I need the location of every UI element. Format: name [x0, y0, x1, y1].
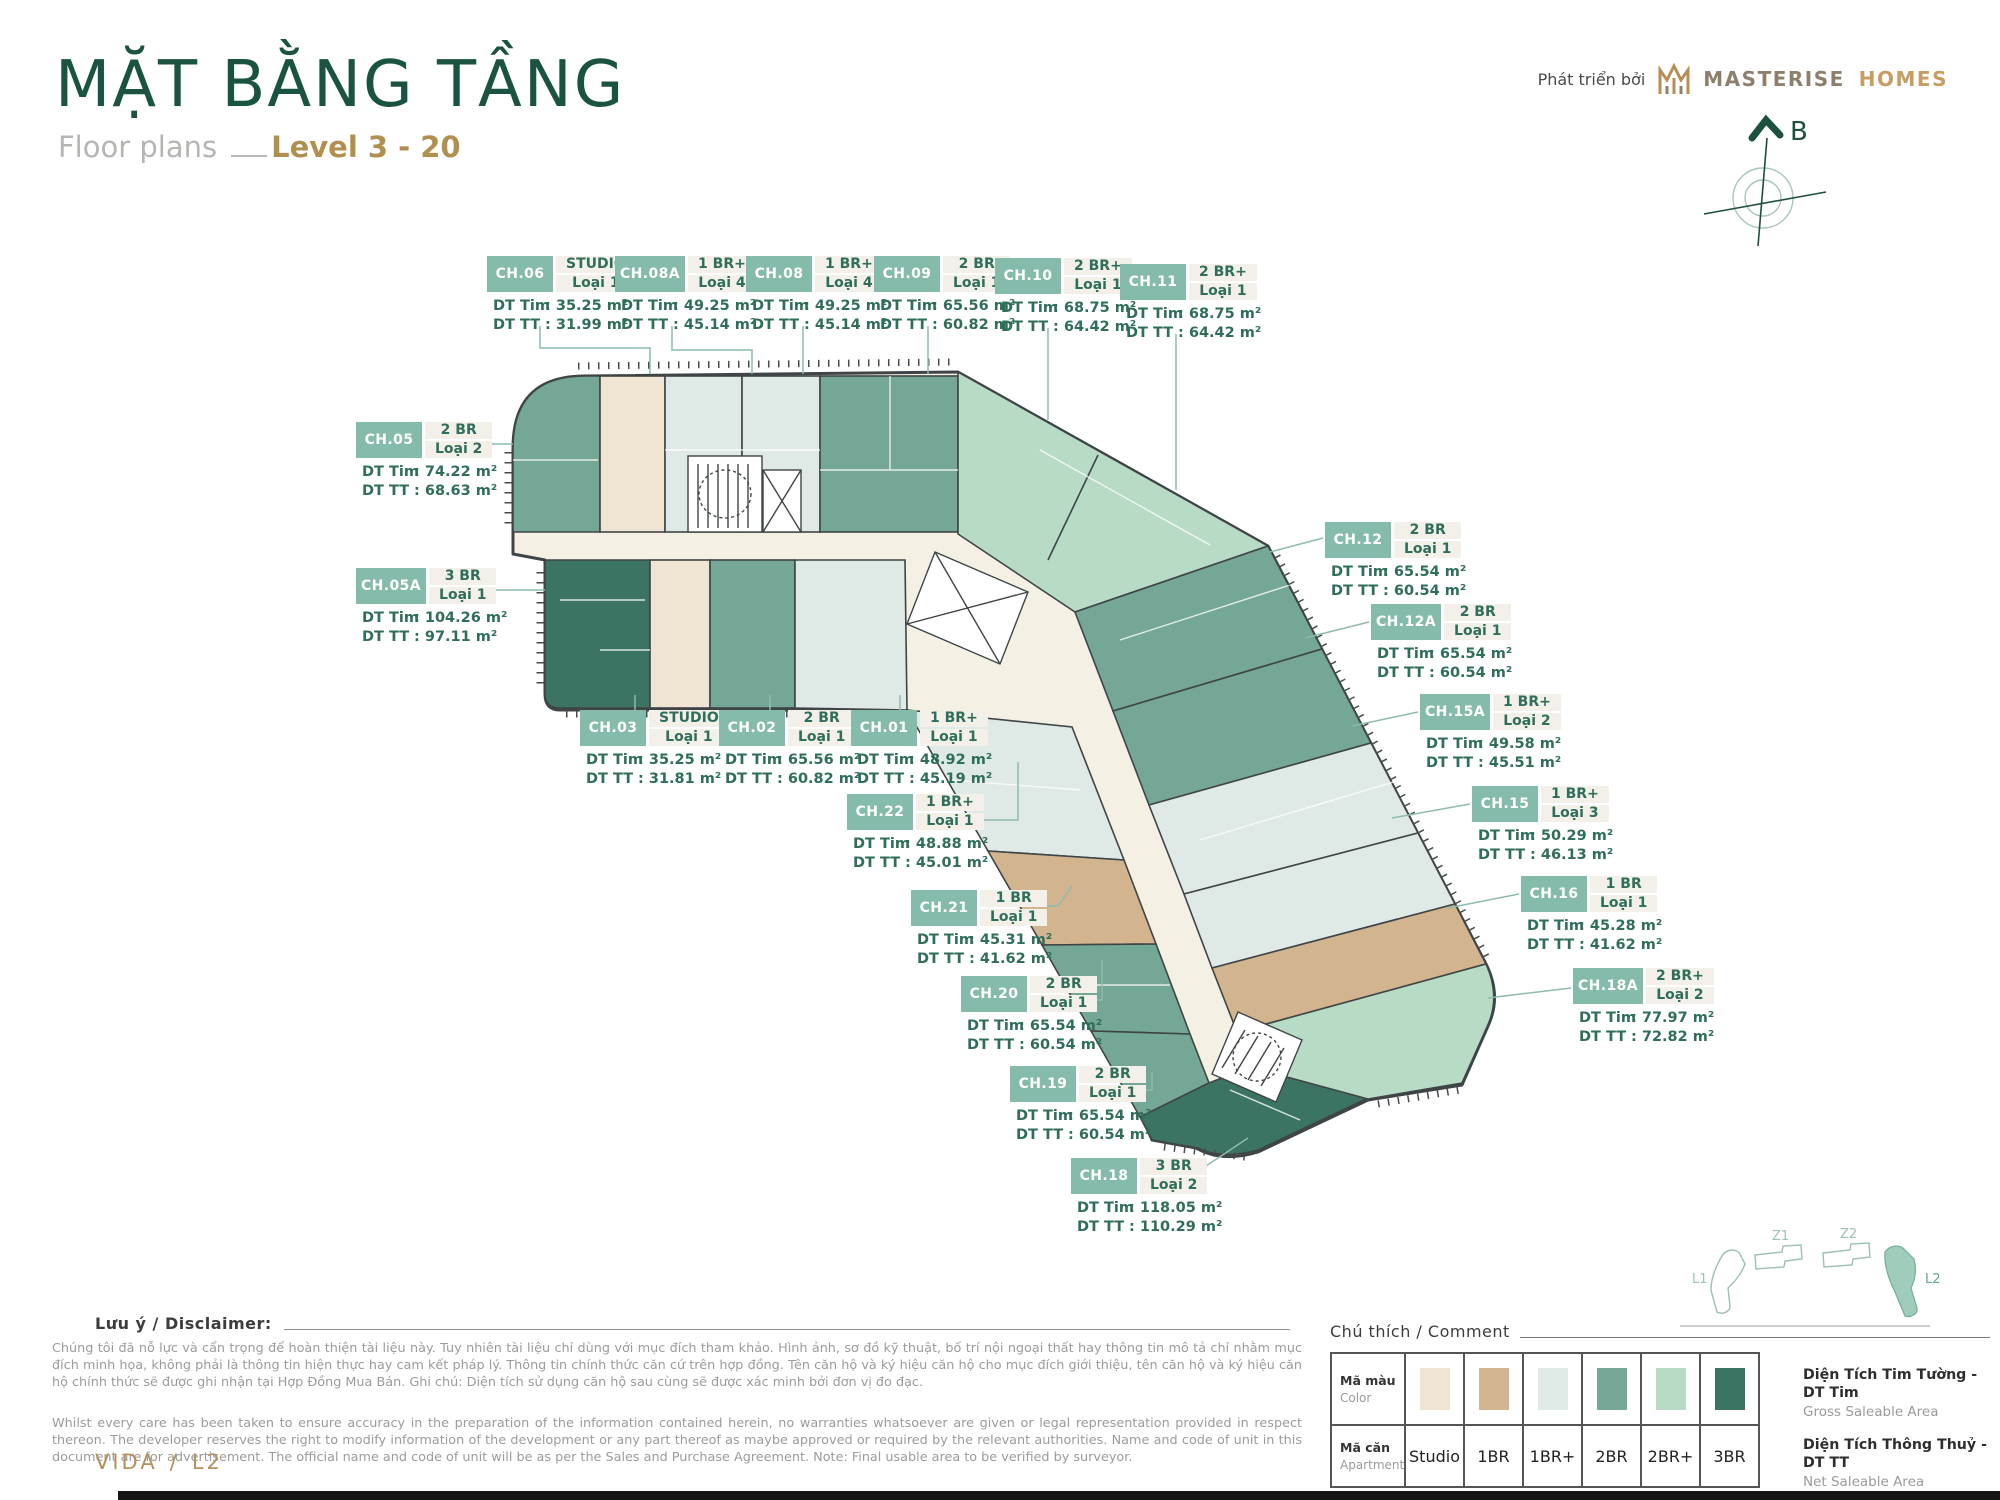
unit-id-badge: CH.02 — [719, 710, 785, 746]
unit-type-variant: Loại 2 — [1493, 713, 1561, 730]
unit-type: 3 BRLoại 2 — [1140, 1158, 1207, 1194]
unit-label-ch02: CH.02 2 BRLoại 1 DT Tim65.56 m² DT TT60.… — [719, 710, 860, 789]
dt-tt-value: 45.51 m² — [1478, 754, 1561, 773]
dt-tim-value: 77.97 m² — [1631, 1009, 1714, 1028]
footer-tower: L2 — [192, 1450, 223, 1474]
unit-id-badge: CH.08 — [746, 256, 812, 292]
dt-tt-label: DT TT — [1527, 936, 1579, 955]
footer-separator: / — [170, 1450, 180, 1474]
unit-id-badge: CH.01 — [851, 710, 917, 746]
unit-label-ch08a: CH.08A 1 BR+Loại 4 DT Tim49.25 m² DT TT4… — [615, 256, 756, 335]
dt-tim-label: DT Tim — [362, 463, 414, 482]
dt-tt-label: DT TT — [362, 482, 414, 501]
dt-tim-label: DT Tim — [1527, 917, 1579, 936]
unit-id-badge: CH.12 — [1325, 522, 1391, 558]
unit-areas: DT Tim74.22 m² DT TT68.63 m² — [356, 463, 497, 501]
legend-color-row-header: Mã màu Color — [1331, 1353, 1405, 1425]
unit-type: 1 BR+Loại 2 — [1493, 694, 1561, 730]
unit-areas: DT Tim35.25 m² DT TT31.99 m² — [487, 297, 636, 335]
unit-type-variant: Loại 1 — [980, 909, 1047, 926]
unit-label-ch19: CH.19 2 BRLoại 1 DT Tim65.54 m² DT TT60.… — [1010, 1066, 1151, 1145]
dt-tim-label: DT Tim — [493, 297, 545, 316]
unit-type-variant: Loại 1 — [1394, 541, 1461, 558]
unit-type-name: 2 BR+ — [1189, 264, 1257, 281]
dt-tt-value: 41.62 m² — [1579, 936, 1662, 955]
dt-tim-value: 118.05 m² — [1129, 1199, 1222, 1218]
unit-type-name: 1 BR+ — [920, 710, 988, 727]
definition-dt-tt-en: Net Saleable Area — [1803, 1474, 1998, 1490]
wing-a-lower-units — [545, 560, 907, 710]
unit-label-ch18a: CH.18A 2 BR+Loại 2 DT Tim77.97 m² DT TT7… — [1573, 968, 1714, 1047]
unit-type-variant: Loại 1 — [916, 813, 984, 830]
unit-id-badge: CH.15A — [1420, 694, 1490, 730]
dt-tim-label: DT Tim — [1016, 1107, 1068, 1126]
dt-tim-value: 50.29 m² — [1530, 827, 1613, 846]
building-outline-z1 — [1755, 1245, 1802, 1269]
dt-tt-label: DT TT — [1077, 1218, 1129, 1237]
unit-type: 1 BRLoại 1 — [980, 890, 1047, 926]
unit-type: 2 BRLoại 1 — [1444, 604, 1511, 640]
swatch-studio — [1420, 1368, 1450, 1410]
dt-tt-value: 45.14 m² — [673, 316, 756, 335]
unit-areas: DT Tim50.29 m² DT TT46.13 m² — [1472, 827, 1613, 865]
dt-tt-label: DT TT — [752, 316, 804, 335]
unit-areas: DT Tim49.25 m² DT TT45.14 m² — [746, 297, 887, 335]
footer-project: VIDA — [95, 1450, 158, 1474]
dt-tim-label: DT Tim — [1579, 1009, 1631, 1028]
swatch-1br — [1479, 1368, 1509, 1410]
unit-areas: DT Tim48.88 m² DT TT45.01 m² — [847, 835, 988, 873]
unit-type-variant: Loại 1 — [649, 729, 729, 746]
unit-areas: DT Tim65.54 m² DT TT60.54 m² — [1010, 1107, 1151, 1145]
unit-type-variant: Loại 1 — [429, 587, 496, 604]
legend-type-1br-plus: 1BR+ — [1523, 1425, 1582, 1487]
footer-project-code: VIDA / L2 — [95, 1450, 223, 1474]
site-map-label-z1: Z1 — [1772, 1229, 1789, 1244]
unit-type-variant: Loại 2 — [1646, 987, 1714, 1004]
unit-label-ch12: CH.12 2 BRLoại 1 DT Tim65.54 m² DT TT60.… — [1325, 522, 1466, 601]
unit-id-badge: CH.18 — [1071, 1158, 1137, 1194]
unit-type-name: 2 BR+ — [1646, 968, 1714, 985]
unit-areas: DT Tim45.28 m² DT TT41.62 m² — [1521, 917, 1662, 955]
bottom-bar — [118, 1491, 2000, 1500]
unit-id-badge: CH.18A — [1573, 968, 1643, 1004]
unit-label-ch15a: CH.15A 1 BR+Loại 2 DT Tim49.58 m² DT TT4… — [1420, 694, 1561, 773]
unit-type-variant: Loại 1 — [1030, 995, 1097, 1012]
dt-tim-value: 35.25 m² — [638, 751, 721, 770]
dt-tim-value: 48.92 m² — [909, 751, 992, 770]
unit-id-badge: CH.08A — [615, 256, 685, 292]
dt-tim-label: DT Tim — [362, 609, 414, 628]
legend-apartment-sublabel: Apartment — [1340, 1458, 1404, 1472]
dt-tim-label: DT Tim — [621, 297, 673, 316]
legend-swatch-cell — [1582, 1353, 1641, 1425]
dt-tim-value: 45.31 m² — [969, 931, 1052, 950]
unit-type: 2 BR+Loại 1 — [1189, 264, 1257, 300]
dt-tim-value: 104.26 m² — [414, 609, 507, 628]
dt-tim-value: 65.54 m² — [1383, 563, 1466, 582]
unit-areas: DT Tim68.75 m² DT TT64.42 m² — [995, 299, 1136, 337]
definition-dt-tim: Diện Tích Tim Tường - DT Tim Gross Salea… — [1803, 1366, 1998, 1420]
dt-tim-value: 65.54 m² — [1429, 645, 1512, 664]
unit-type-name: 1 BR+ — [1493, 694, 1561, 711]
unit-areas: DT Tim45.31 m² DT TT41.62 m² — [911, 931, 1052, 969]
dt-tt-label: DT TT — [1426, 754, 1478, 773]
plan-unit-ch02 — [710, 560, 795, 708]
swatch-1br-plus — [1538, 1368, 1568, 1410]
legend-apartment-label: Mã căn — [1340, 1440, 1390, 1455]
site-map-drawing: L1 Z1 Z2 L2 — [1680, 1228, 2000, 1333]
dt-tt-value: 60.54 m² — [1068, 1126, 1151, 1145]
unit-label-ch01: CH.01 1 BR+Loại 1 DT Tim48.92 m² DT TT45… — [851, 710, 992, 789]
swatch-2br-plus — [1656, 1368, 1686, 1410]
unit-areas: DT Tim49.58 m² DT TT45.51 m² — [1420, 735, 1561, 773]
unit-id-badge: CH.10 — [995, 258, 1061, 294]
unit-type: 2 BRLoại 1 — [1394, 522, 1461, 558]
unit-id-badge: CH.16 — [1521, 876, 1587, 912]
dt-tt-label: DT TT — [880, 316, 932, 335]
disclaimer-heading-text: Lưu ý / Disclaimer: — [95, 1314, 272, 1333]
unit-type-name: 1 BR+ — [1541, 786, 1609, 803]
dt-tim-label: DT Tim — [1478, 827, 1530, 846]
legend-swatch-cell — [1405, 1353, 1464, 1425]
dt-tim-label: DT Tim — [857, 751, 909, 770]
dt-tim-label: DT Tim — [853, 835, 905, 854]
legend-heading-text: Chú thích / Comment — [1330, 1322, 1510, 1341]
dt-tt-value: 110.29 m² — [1129, 1218, 1222, 1237]
unit-label-ch11: CH.11 2 BR+Loại 1 DT Tim68.75 m² DT TT64… — [1120, 264, 1261, 343]
unit-label-ch06: CH.06 STUDIOLoại 1 DT Tim35.25 m² DT TT3… — [487, 256, 636, 335]
dt-tim-label: DT Tim — [967, 1017, 1019, 1036]
dt-tt-label: DT TT — [857, 770, 909, 789]
unit-areas: DT Tim104.26 m² DT TT97.11 m² — [356, 609, 507, 647]
unit-type-name: 2 BR — [1030, 976, 1097, 993]
unit-type-name: 2 BR — [1394, 522, 1461, 539]
dt-tt-label: DT TT — [1331, 582, 1383, 601]
dt-tt-value: 45.01 m² — [905, 854, 988, 873]
building-outline-l1 — [1711, 1250, 1745, 1313]
site-map: L1 Z1 Z2 L2 — [1680, 1228, 2000, 1337]
floorplan-page: MẶT BẰNG TẦNG Floor plans Level 3 - 20 P… — [0, 0, 2000, 1500]
dt-tt-label: DT TT — [917, 950, 969, 969]
dt-tt-value: 72.82 m² — [1631, 1028, 1714, 1047]
plan-unit-ch05a — [545, 560, 650, 708]
unit-label-ch15: CH.15 1 BR+Loại 3 DT Tim50.29 m² DT TT46… — [1472, 786, 1613, 865]
unit-id-badge: CH.11 — [1120, 264, 1186, 300]
dt-tim-label: DT Tim — [1077, 1199, 1129, 1218]
disclaimer-english: Whilst every care has been taken to ensu… — [52, 1415, 1302, 1466]
unit-type-variant: Loại 3 — [1541, 805, 1609, 822]
dt-tim-label: DT Tim — [917, 931, 969, 950]
dt-tim-label: DT Tim — [1426, 735, 1478, 754]
unit-id-badge: CH.05 — [356, 422, 422, 458]
building-highlight-l2 — [1885, 1246, 1917, 1316]
disclaimer-rule — [284, 1329, 1290, 1330]
site-map-label-z2: Z2 — [1840, 1228, 1857, 1242]
unit-type-name: 3 BR — [429, 568, 496, 585]
unit-areas: DT Tim65.54 m² DT TT60.54 m² — [1325, 563, 1466, 601]
unit-type: 2 BRLoại 1 — [1079, 1066, 1146, 1102]
unit-areas: DT Tim65.56 m² DT TT60.82 m² — [719, 751, 860, 789]
unit-type-name: 2 BR — [788, 710, 855, 727]
unit-label-ch22: CH.22 1 BR+Loại 1 DT Tim48.88 m² DT TT45… — [847, 794, 988, 873]
dt-tt-label: DT TT — [1001, 318, 1053, 337]
dt-tt-value: 64.42 m² — [1178, 324, 1261, 343]
unit-areas: DT Tim77.97 m² DT TT72.82 m² — [1573, 1009, 1714, 1047]
unit-type-variant: Loại 1 — [920, 729, 988, 746]
plan-unit-ch01 — [795, 560, 907, 710]
dt-tim-value: 49.58 m² — [1478, 735, 1561, 754]
unit-type: STUDIOLoại 1 — [649, 710, 729, 746]
dt-tim-label: DT Tim — [1331, 563, 1383, 582]
unit-type-variant: Loại 2 — [1140, 1177, 1207, 1194]
legend-table: Mã màu Color Mã căn Apartment Studio 1BR… — [1330, 1352, 1760, 1488]
definition-dt-tt: Diện Tích Thông Thuỷ - DT TT Net Saleabl… — [1803, 1436, 1998, 1490]
legend-swatch-cell — [1523, 1353, 1582, 1425]
dt-tt-label: DT TT — [967, 1036, 1019, 1055]
dt-tt-label: DT TT — [853, 854, 905, 873]
unit-type: 2 BRLoại 1 — [1030, 976, 1097, 1012]
dt-tt-label: DT TT — [1579, 1028, 1631, 1047]
legend-type-1br: 1BR — [1464, 1425, 1523, 1487]
disclaimer-vietnamese: Chúng tôi đã nỗ lực và cẩn trọng để hoàn… — [52, 1340, 1302, 1391]
unit-type-name: 1 BR — [1590, 876, 1657, 893]
unit-id-badge: CH.15 — [1472, 786, 1538, 822]
unit-type-name: 1 BR — [980, 890, 1047, 907]
plan-unit-ch05 — [513, 376, 600, 532]
dt-tt-value: 60.54 m² — [1383, 582, 1466, 601]
unit-type-name: 2 BR — [425, 422, 492, 439]
unit-type-name: 2 BR — [1444, 604, 1511, 621]
plan-unit-ch03 — [650, 560, 710, 708]
unit-id-badge: CH.12A — [1371, 604, 1441, 640]
unit-type: 1 BR+Loại 1 — [916, 794, 984, 830]
unit-type: 3 BRLoại 1 — [429, 568, 496, 604]
dt-tt-label: DT TT — [1126, 324, 1178, 343]
unit-label-ch16: CH.16 1 BRLoại 1 DT Tim45.28 m² DT TT41.… — [1521, 876, 1662, 955]
unit-label-ch20: CH.20 2 BRLoại 1 DT Tim65.54 m² DT TT60.… — [961, 976, 1102, 1055]
unit-label-ch21: CH.21 1 BRLoại 1 DT Tim45.31 m² DT TT41.… — [911, 890, 1052, 969]
definition-dt-tim-vi: Diện Tích Tim Tường - DT Tim — [1803, 1366, 1998, 1402]
unit-type-variant: Loại 4 — [815, 275, 883, 292]
legend-type-3br: 3BR — [1700, 1425, 1759, 1487]
unit-type: 1 BR+Loại 3 — [1541, 786, 1609, 822]
unit-areas: DT Tim68.75 m² DT TT64.42 m² — [1120, 305, 1261, 343]
unit-type-name: 3 BR — [1140, 1158, 1207, 1175]
dt-tim-value: 48.88 m² — [905, 835, 988, 854]
plan-unit-ch09 — [820, 376, 958, 532]
legend-type-2br-plus: 2BR+ — [1641, 1425, 1700, 1487]
legend-swatch-cell — [1700, 1353, 1759, 1425]
unit-id-badge: CH.22 — [847, 794, 913, 830]
unit-type-variant: Loại 1 — [1189, 283, 1257, 300]
dt-tim-value: 68.75 m² — [1178, 305, 1261, 324]
dt-tt-value: 41.62 m² — [969, 950, 1052, 969]
dt-tt-value: 60.82 m² — [777, 770, 860, 789]
dt-tim-value: 45.28 m² — [1579, 917, 1662, 936]
dt-tim-label: DT Tim — [1377, 645, 1429, 664]
disclaimer-heading: Lưu ý / Disclaimer: — [95, 1314, 1290, 1333]
unit-id-badge: CH.21 — [911, 890, 977, 926]
legend-color-label: Mã màu — [1340, 1373, 1396, 1388]
dt-tim-label: DT Tim — [1126, 305, 1178, 324]
unit-areas: DT Tim35.25 m² DT TT31.81 m² — [580, 751, 729, 789]
swatch-2br — [1597, 1368, 1627, 1410]
unit-type: 2 BRLoại 1 — [788, 710, 855, 746]
unit-label-ch05a: CH.05A 3 BRLoại 1 DT Tim104.26 m² DT TT9… — [356, 568, 507, 647]
dt-tim-value: 74.22 m² — [414, 463, 497, 482]
site-map-label-l1: L1 — [1692, 1272, 1708, 1287]
unit-id-badge: CH.20 — [961, 976, 1027, 1012]
dt-tim-value: 65.54 m² — [1019, 1017, 1102, 1036]
legend-swatch-cell — [1464, 1353, 1523, 1425]
legend-type-2br: 2BR — [1582, 1425, 1641, 1487]
unit-type-variant: Loại 1 — [1444, 623, 1511, 640]
unit-type-variant: Loại 1 — [1590, 895, 1657, 912]
site-map-label-l2: L2 — [1925, 1272, 1941, 1287]
definition-dt-tt-vi: Diện Tích Thông Thuỷ - DT TT — [1803, 1436, 1998, 1472]
dt-tim-label: DT Tim — [880, 297, 932, 316]
legend-color-sublabel: Color — [1340, 1391, 1371, 1405]
unit-type: 2 BR+Loại 2 — [1646, 968, 1714, 1004]
unit-id-badge: CH.19 — [1010, 1066, 1076, 1102]
dt-tt-value: 97.11 m² — [414, 628, 497, 647]
dt-tim-value: 65.54 m² — [1068, 1107, 1151, 1126]
swatch-3br — [1715, 1368, 1745, 1410]
legend-rule — [1520, 1337, 1990, 1338]
unit-label-ch03: CH.03 STUDIOLoại 1 DT Tim35.25 m² DT TT3… — [580, 710, 729, 789]
building-outline-z2 — [1823, 1243, 1870, 1267]
legend-apartment-row-header: Mã căn Apartment — [1331, 1425, 1405, 1487]
dt-tim-label: DT Tim — [1001, 299, 1053, 318]
unit-type-name: 1 BR+ — [916, 794, 984, 811]
unit-type-variant: Loại 1 — [788, 729, 855, 746]
dt-tim-label: DT Tim — [725, 751, 777, 770]
unit-type-name: 1 BR+ — [815, 256, 883, 273]
unit-type: 2 BRLoại 2 — [425, 422, 492, 458]
dt-tt-label: DT TT — [621, 316, 673, 335]
unit-label-ch08: CH.08 1 BR+Loại 4 DT Tim49.25 m² DT TT45… — [746, 256, 887, 335]
dt-tt-value: 46.13 m² — [1530, 846, 1613, 865]
dt-tt-label: DT TT — [586, 770, 638, 789]
unit-type: 1 BRLoại 1 — [1590, 876, 1657, 912]
unit-label-ch18: CH.18 3 BRLoại 2 DT Tim118.05 m² DT TT11… — [1071, 1158, 1222, 1237]
unit-areas: DT Tim118.05 m² DT TT110.29 m² — [1071, 1199, 1222, 1237]
unit-id-badge: CH.09 — [874, 256, 940, 292]
unit-label-ch12a: CH.12A 2 BRLoại 1 DT Tim65.54 m² DT TT60… — [1371, 604, 1512, 683]
dt-tim-value: 65.56 m² — [777, 751, 860, 770]
dt-tim-label: DT Tim — [752, 297, 804, 316]
unit-type: 1 BR+Loại 1 — [920, 710, 988, 746]
unit-areas: DT Tim48.92 m² DT TT45.19 m² — [851, 751, 992, 789]
dt-tt-value: 68.63 m² — [414, 482, 497, 501]
unit-id-badge: CH.03 — [580, 710, 646, 746]
unit-areas: DT Tim65.54 m² DT TT60.54 m² — [1371, 645, 1512, 683]
dt-tt-value: 60.54 m² — [1019, 1036, 1102, 1055]
unit-type: 1 BR+Loại 4 — [815, 256, 883, 292]
dt-tt-label: DT TT — [493, 316, 545, 335]
dt-tt-label: DT TT — [1016, 1126, 1068, 1145]
legend-definitions: Diện Tích Tim Tường - DT Tim Gross Salea… — [1803, 1366, 1998, 1490]
definition-dt-tim-en: Gross Saleable Area — [1803, 1404, 1998, 1420]
unit-type-variant: Loại 1 — [1079, 1085, 1146, 1102]
unit-areas: DT Tim49.25 m² DT TT45.14 m² — [615, 297, 756, 335]
dt-tt-label: DT TT — [1377, 664, 1429, 683]
dt-tim-value: 49.25 m² — [673, 297, 756, 316]
dt-tt-label: DT TT — [1478, 846, 1530, 865]
dt-tt-value: 31.81 m² — [638, 770, 721, 789]
dt-tt-label: DT TT — [725, 770, 777, 789]
unit-id-badge: CH.06 — [487, 256, 553, 292]
dt-tt-value: 60.54 m² — [1429, 664, 1512, 683]
dt-tim-label: DT Tim — [586, 751, 638, 770]
unit-id-badge: CH.05A — [356, 568, 426, 604]
unit-areas: DT Tim65.54 m² DT TT60.54 m² — [961, 1017, 1102, 1055]
unit-type-name: STUDIO — [649, 710, 729, 727]
dt-tt-value: 45.19 m² — [909, 770, 992, 789]
legend-swatch-cell — [1641, 1353, 1700, 1425]
unit-type-name: 2 BR — [1079, 1066, 1146, 1083]
plan-unit-ch06 — [600, 376, 665, 532]
unit-label-ch10: CH.10 2 BR+Loại 1 DT Tim68.75 m² DT TT64… — [995, 258, 1136, 337]
unit-type-variant: Loại 2 — [425, 441, 492, 458]
dt-tt-label: DT TT — [362, 628, 414, 647]
unit-label-ch05: CH.05 2 BRLoại 2 DT Tim74.22 m² DT TT68.… — [356, 422, 497, 501]
legend-type-studio: Studio — [1405, 1425, 1464, 1487]
